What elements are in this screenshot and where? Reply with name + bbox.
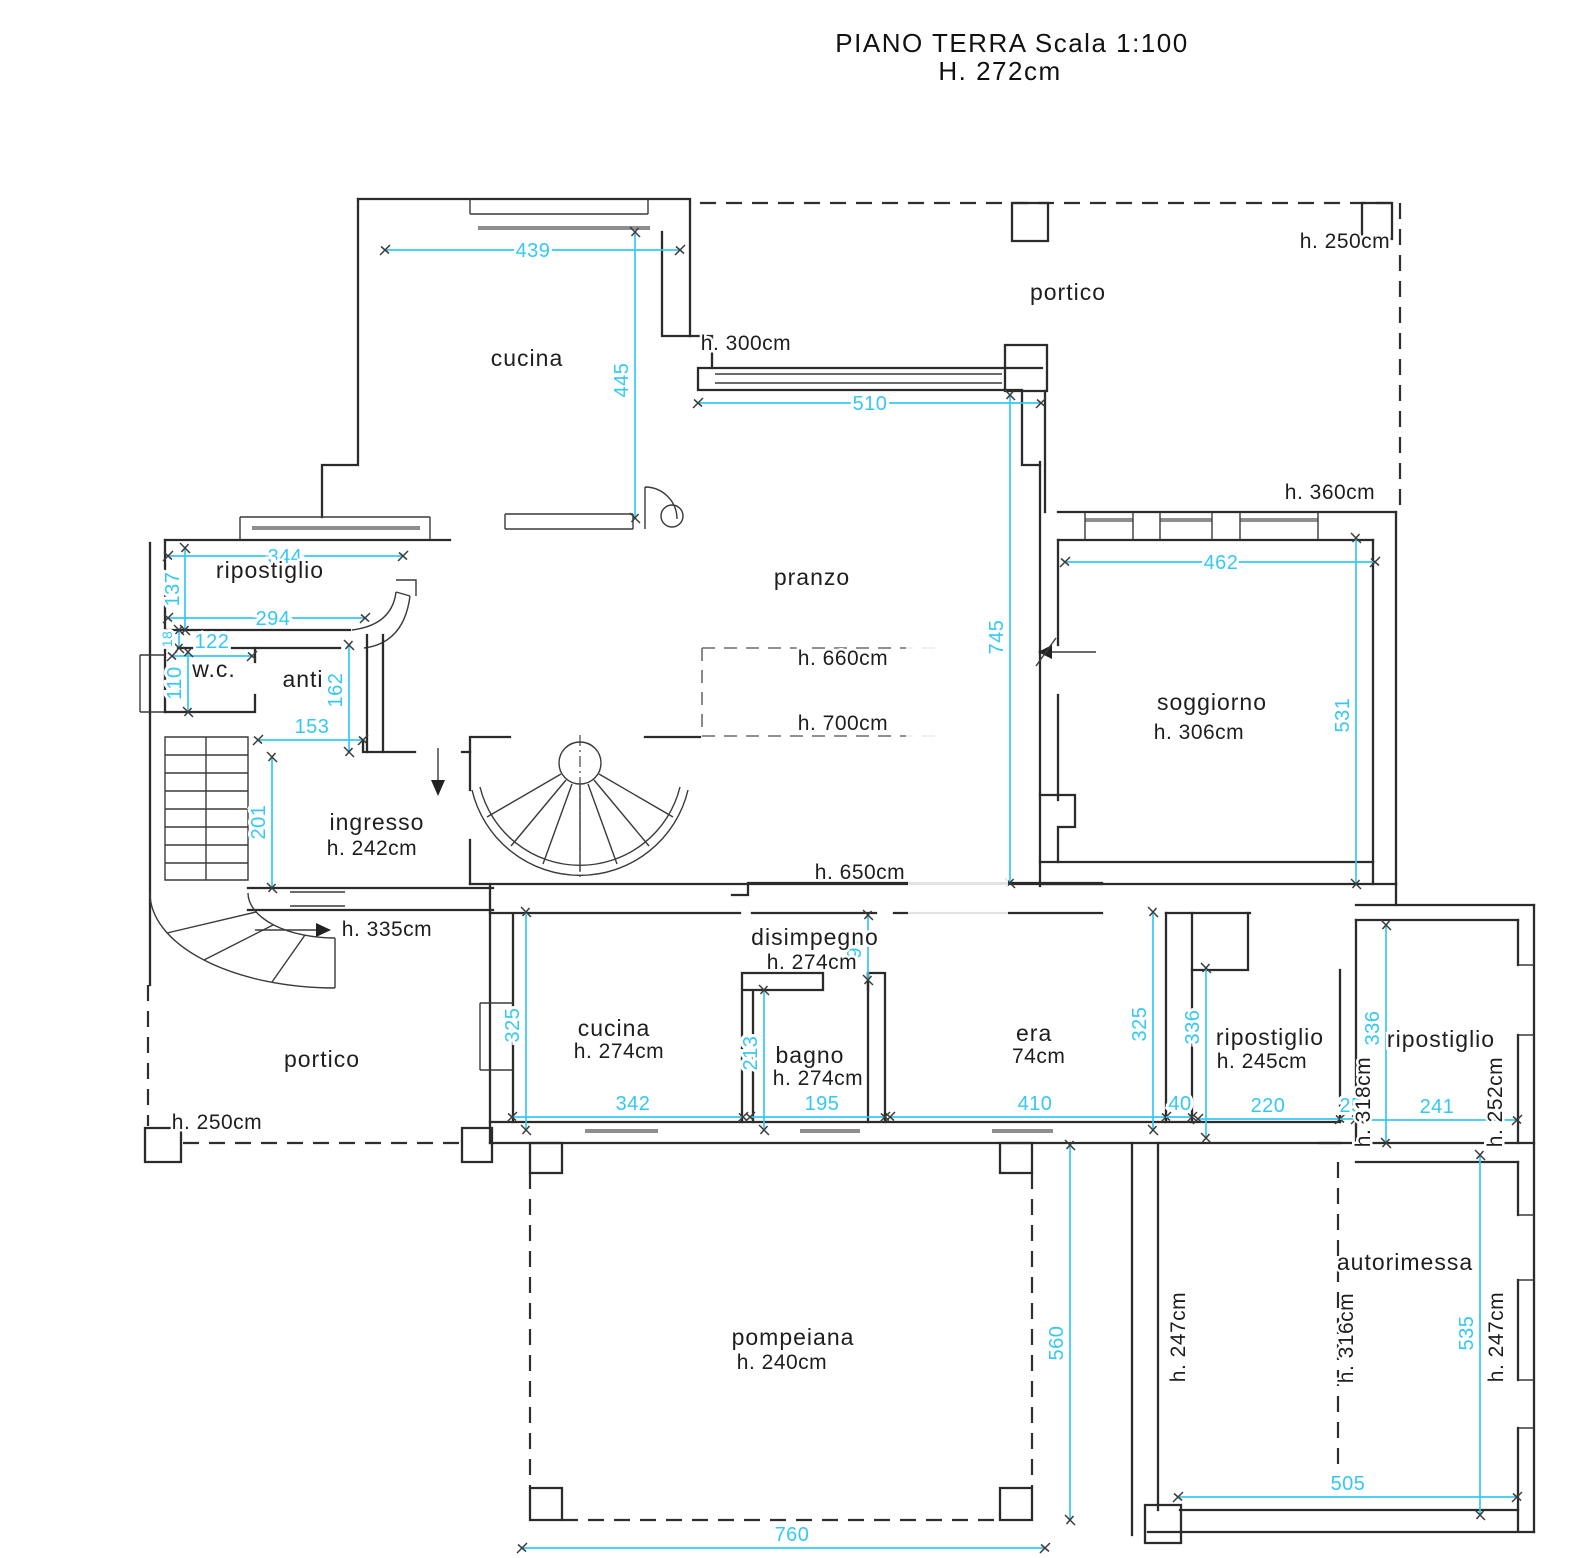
height-h360: h. 360cm [1285,481,1375,504]
room-label-anti: anti [282,666,323,692]
room-label-camera-partial: era [1016,1020,1052,1046]
dim-535: 535 [1456,1316,1478,1351]
height-h335: h. 335cm [342,918,432,941]
height-portico-bottom: h. 250cm [172,1111,262,1134]
dim-201: 201 [248,805,270,840]
dim-439: 439 [516,240,551,262]
room-label-cucina-bottom: cucina [578,1015,650,1041]
dim-325-left: 325 [502,1008,524,1043]
watermark-blur [906,468,1010,1088]
dim-325-right: 325 [1129,1007,1151,1042]
plan-subtitle: H. 272cm [938,56,1061,86]
height-ingresso: h. 242cm [327,837,417,860]
ingresso-door-arrow [431,748,445,796]
dim-195: 195 [805,1093,840,1115]
room-label-ingresso: ingresso [330,809,425,835]
dim-505: 505 [1331,1473,1366,1495]
stair-direction-arrow [255,923,331,937]
room-label-disimpegno: disimpegno [751,924,879,950]
dim-342: 342 [616,1093,651,1115]
height-h300: h. 300cm [701,332,791,355]
dim-336-right: 336 [1362,1011,1384,1046]
height-h318: h. 318cm [1352,1057,1375,1147]
height-disimpegno: h. 274cm [767,951,857,974]
dim-220: 220 [1251,1095,1286,1117]
dim-40: 40 [1168,1093,1191,1115]
floor-plan-drawing: 439 510 344 294 122 153 462 342 195 410 … [0,0,1596,1558]
dim-410: 410 [1018,1093,1053,1115]
height-pompeiana: h. 240cm [737,1351,827,1374]
dim-560: 560 [1046,1326,1068,1361]
dim-745: 745 [986,620,1008,655]
dimension-lines [168,232,1517,1548]
room-label-portico-top: portico [1030,279,1106,305]
room-label-wc: w.c. [191,656,236,682]
height-cucina-bottom: h. 274cm [574,1040,664,1063]
room-label-portico-bottom: portico [284,1046,360,1072]
dim-162: 162 [325,673,347,708]
room-label-pranzo: pranzo [774,564,850,590]
dim-241: 241 [1420,1096,1455,1118]
text-labels: PIANO TERRA Scala 1:100 H. 272cm cucina … [172,28,1508,1383]
room-label-ripostiglio-right: ripostiglio [1387,1026,1495,1052]
height-autorimessa-right: h. 247cm [1485,1292,1508,1382]
room-label-ripostiglio-top: ripostiglio [216,557,324,583]
dim-122: 122 [195,631,230,653]
height-h700: h. 700cm [798,712,888,735]
dim-110: 110 [164,666,186,699]
room-label-bagno: bagno [776,1042,845,1068]
height-autorimessa-left: h. 247cm [1167,1292,1190,1382]
dim-336-mid: 336 [1182,1010,1204,1045]
plan-title: PIANO TERRA Scala 1:100 [835,28,1188,58]
height-ripostiglio-mid: h. 245cm [1217,1050,1307,1073]
soggiorno-door-arrow [1036,638,1096,666]
dim-760: 760 [775,1524,810,1546]
height-h650: h. 650cm [815,861,905,884]
room-label-cucina-top: cucina [491,345,563,371]
dim-137: 137 [162,572,184,607]
room-label-pompeiana: pompeiana [732,1324,855,1350]
dim-531: 531 [1332,698,1354,733]
floor-plan-page: 439 510 344 294 122 153 462 342 195 410 … [0,0,1596,1558]
height-autorimessa-mid: h. 316cm [1335,1293,1358,1383]
height-soggiorno: h. 306cm [1154,721,1244,744]
height-h660: h. 660cm [798,647,888,670]
room-label-autorimessa: autorimessa [1337,1249,1473,1275]
room-label-ripostiglio-mid: ripostiglio [1216,1024,1324,1050]
height-h252: h. 252cm [1484,1057,1507,1147]
room-label-soggiorno: soggiorno [1157,689,1267,715]
height-camera-partial: 74cm [1012,1045,1065,1068]
height-bagno: h. 274cm [773,1067,863,1090]
dim-213: 213 [740,1036,762,1071]
height-portico-top: h. 250cm [1300,230,1390,253]
dim-462: 462 [1204,552,1239,574]
dim-445: 445 [611,363,633,398]
dim-510: 510 [853,393,888,415]
dim-294: 294 [256,608,291,630]
dim-18: 18 [159,631,175,648]
dim-153: 153 [295,716,330,738]
